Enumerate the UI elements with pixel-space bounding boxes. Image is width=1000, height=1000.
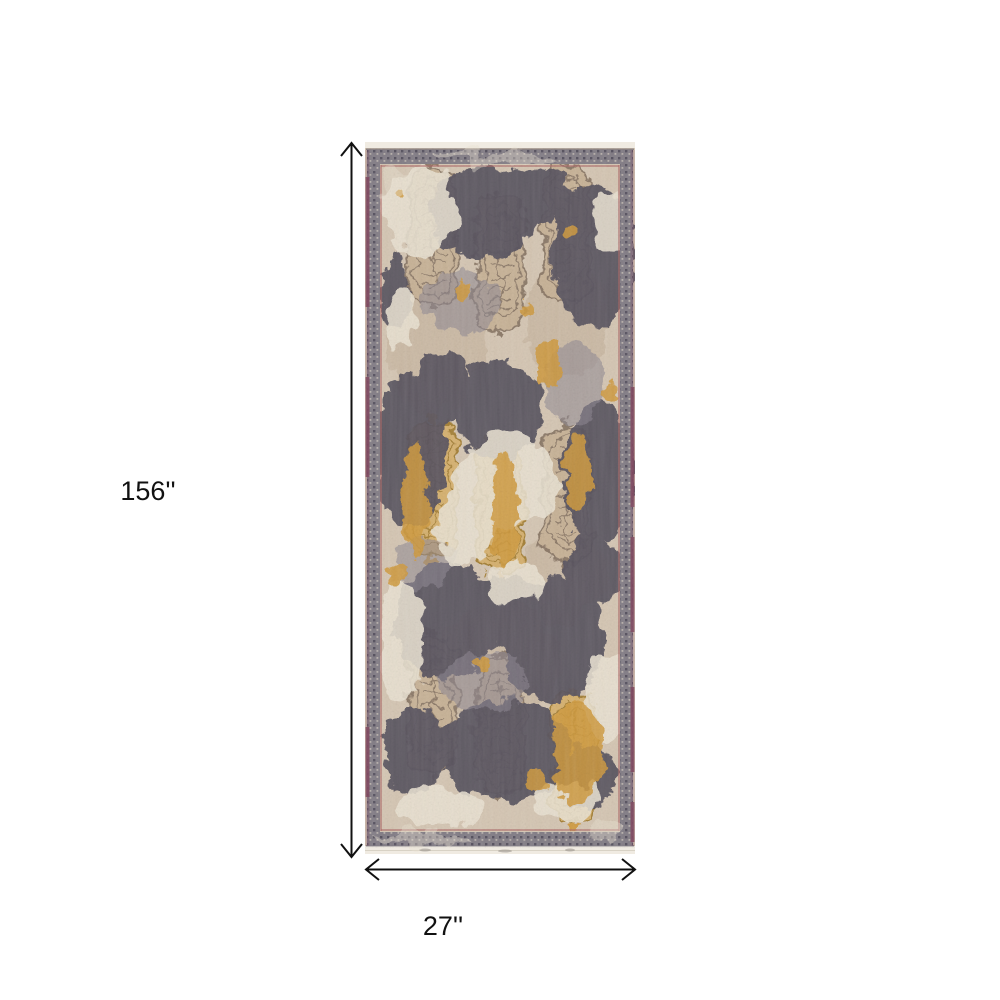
product-dimension-diagram: 156'' 27'' xyxy=(0,0,1000,1000)
rug-image xyxy=(365,142,635,854)
height-label: 156'' xyxy=(120,478,175,505)
rug-texture-streaks xyxy=(365,148,635,848)
width-label: 27'' xyxy=(423,913,463,940)
width-arrow-icon xyxy=(366,859,635,880)
height-arrow-icon xyxy=(341,143,362,857)
rug-svg xyxy=(365,142,635,854)
